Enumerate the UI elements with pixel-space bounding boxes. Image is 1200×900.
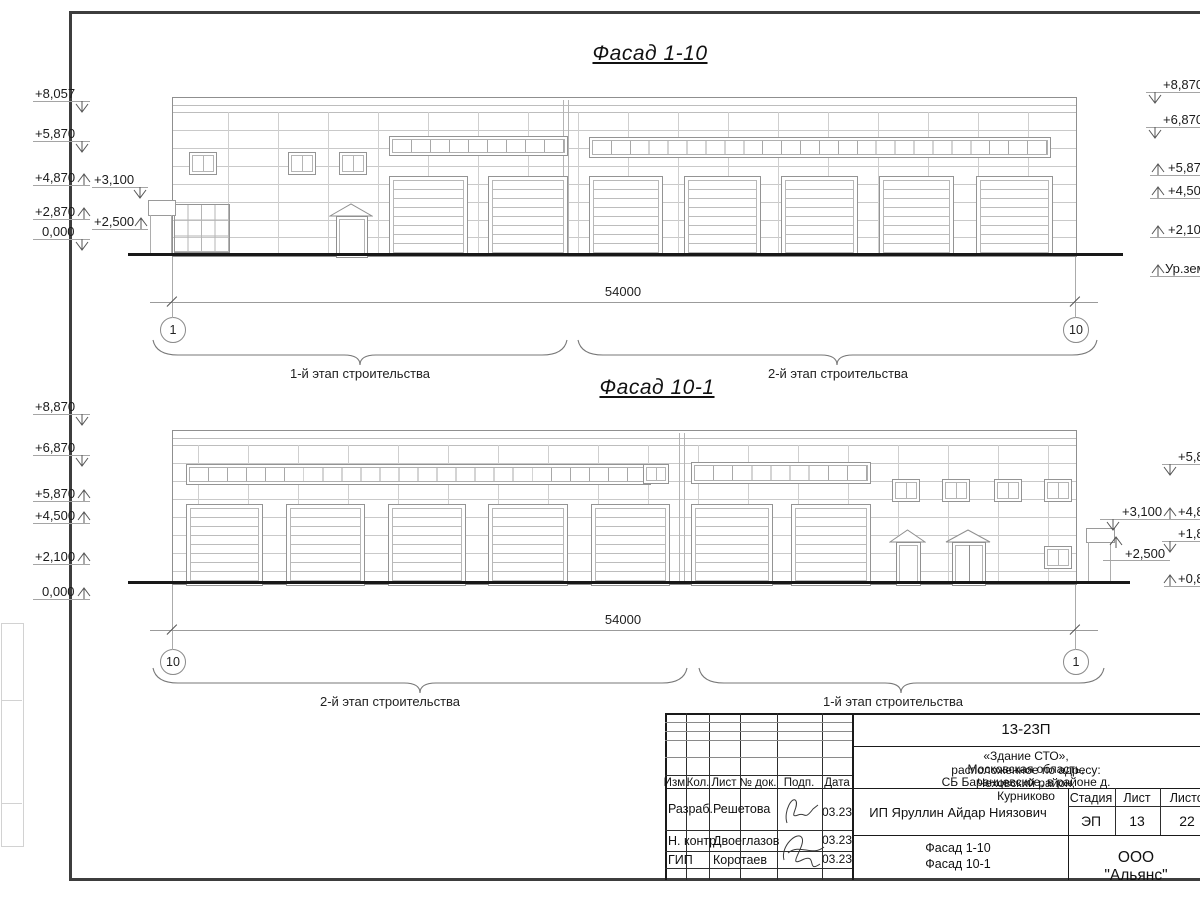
line bbox=[1075, 257, 1076, 318]
elevation-mark-label: +2,870 bbox=[35, 204, 75, 219]
title-block-line bbox=[665, 740, 852, 741]
garage-door-slats bbox=[695, 508, 769, 582]
title-block-line bbox=[709, 713, 710, 880]
row-role: Разраб. bbox=[668, 802, 713, 816]
elevation-mark-label: +8,057 bbox=[35, 86, 75, 101]
panel-joint-line bbox=[173, 130, 1076, 131]
elevation-mark-label: +5,870 bbox=[1168, 160, 1200, 175]
small-window bbox=[942, 479, 970, 502]
elevation-mark-label: +0,8 bbox=[1178, 571, 1200, 586]
drawing-sheet: Фасад 1-10 Фасад 10-1 54000 54000 1 10 1… bbox=[0, 0, 1200, 900]
door-pediment bbox=[889, 529, 926, 543]
elevation-mark-arrow bbox=[1147, 127, 1163, 140]
entry-door bbox=[952, 542, 986, 586]
elevation-mark-label: +4,8 bbox=[1178, 504, 1200, 519]
client-name: ИП Яруллин Айдар Ниязович bbox=[869, 805, 1046, 820]
ribbon-window bbox=[389, 136, 568, 156]
elevation-mark-label: +6,870 bbox=[35, 440, 75, 455]
elevation-mark-arrow bbox=[74, 239, 90, 252]
canopy bbox=[148, 200, 176, 216]
garage-door bbox=[976, 176, 1053, 257]
garage-door-slats bbox=[785, 180, 854, 253]
line bbox=[1150, 198, 1200, 199]
title-block-line bbox=[665, 775, 852, 776]
line bbox=[1075, 585, 1076, 650]
elevation-mark-label: +5,870 bbox=[35, 486, 75, 501]
canopy-post bbox=[1110, 542, 1111, 582]
col-header-list: Лист bbox=[712, 777, 737, 789]
row-date: 03.23 bbox=[822, 805, 852, 819]
elevation-mark-arrow bbox=[74, 141, 90, 154]
col-header-kol: Кол. bbox=[687, 777, 710, 789]
parapet-band-line bbox=[173, 438, 1076, 439]
parapet-band-line bbox=[173, 445, 1076, 446]
stage-header: Стадия bbox=[1070, 791, 1113, 805]
elevation-mark-label: 0,000 bbox=[42, 224, 75, 239]
line bbox=[1150, 237, 1200, 238]
elevation-mark-label: Ур.земли bbox=[1165, 261, 1200, 276]
window-mullion bbox=[1058, 550, 1059, 565]
garage-door-slats bbox=[883, 180, 950, 253]
small-window bbox=[339, 152, 367, 175]
garage-door-slats bbox=[795, 508, 867, 582]
garage-door bbox=[781, 176, 858, 257]
signature-icon bbox=[780, 791, 822, 829]
row-role: ГИП bbox=[668, 853, 693, 867]
elevation-mark-arrow bbox=[74, 414, 90, 427]
garage-door bbox=[488, 504, 568, 586]
elevation-mark-arrow bbox=[76, 510, 92, 523]
elevation-mark-arrow bbox=[74, 455, 90, 468]
title-block-line bbox=[1115, 788, 1116, 835]
col-header-doc: № док. bbox=[740, 777, 777, 789]
panel-joint-line bbox=[173, 499, 1076, 500]
doc-number: 13-23П bbox=[1001, 721, 1050, 738]
small-window-panes bbox=[1047, 482, 1069, 499]
elevation-mark-arrow bbox=[1162, 541, 1178, 554]
garage-door-slats bbox=[290, 508, 361, 582]
small-window bbox=[189, 152, 217, 175]
panel-joint-line bbox=[328, 112, 329, 254]
ribbon-window-panes bbox=[694, 465, 868, 481]
row-name: Решетова bbox=[713, 802, 770, 816]
small-window-panes bbox=[895, 482, 917, 499]
panel-joint-line bbox=[278, 112, 279, 254]
elevation-mark-label: +2,500 bbox=[94, 214, 134, 229]
elevation-mark-arrow bbox=[76, 551, 92, 564]
elevation-mark-label: +5,8 bbox=[1178, 449, 1200, 464]
small-window-panes bbox=[1047, 549, 1069, 566]
elevation-mark-label: +2,100 bbox=[1168, 222, 1200, 237]
line bbox=[1150, 175, 1200, 176]
door-leaf bbox=[339, 219, 365, 255]
garage-door bbox=[186, 504, 263, 586]
window-mullion bbox=[906, 483, 907, 498]
door-leaf bbox=[899, 545, 918, 583]
elevation-mark-label: +3,100 bbox=[94, 172, 134, 187]
sheet-header: Лист bbox=[1123, 791, 1150, 805]
ribbon-window-panes bbox=[189, 467, 648, 482]
panel-joint-line bbox=[478, 112, 479, 254]
small-window-panes bbox=[945, 482, 967, 499]
line bbox=[33, 523, 90, 524]
elevation-mark-arrow bbox=[1150, 162, 1166, 175]
stage-joint-line bbox=[679, 433, 680, 582]
entry-door bbox=[896, 542, 921, 586]
elevation-mark-label: +1,8 bbox=[1178, 526, 1200, 541]
garage-door-slats bbox=[593, 180, 659, 253]
small-window bbox=[1044, 546, 1072, 569]
row-role: Н. контр. bbox=[668, 834, 720, 848]
stage-joint-line bbox=[684, 433, 685, 582]
window-mullion bbox=[302, 156, 303, 171]
line bbox=[172, 585, 173, 650]
line bbox=[172, 257, 173, 318]
col-header-izm: Изм. bbox=[664, 777, 689, 789]
elevation-mark-arrow bbox=[74, 101, 90, 114]
glazed-section bbox=[174, 204, 230, 253]
elevation-mark-arrow bbox=[1150, 224, 1166, 237]
line bbox=[33, 599, 90, 600]
small-window-panes bbox=[646, 467, 666, 481]
window-mullion bbox=[956, 483, 957, 498]
garage-door bbox=[791, 504, 871, 586]
elevation-mark-arrow bbox=[1162, 464, 1178, 477]
elevation-mark-label: +4,500 bbox=[1168, 183, 1200, 198]
elevation-mark-label: +4,500 bbox=[35, 508, 75, 523]
stage-joint-line bbox=[568, 100, 569, 254]
stage-value: ЭП bbox=[1081, 813, 1101, 829]
elevation-mark-label: +2,100 bbox=[35, 549, 75, 564]
garage-door bbox=[591, 504, 670, 586]
garage-door bbox=[691, 504, 773, 586]
garage-door bbox=[589, 176, 663, 257]
window-mullion bbox=[203, 156, 204, 171]
door-pediment bbox=[945, 529, 991, 543]
small-window bbox=[643, 464, 669, 484]
panel-joint-line bbox=[578, 112, 579, 254]
garage-door-slats bbox=[393, 180, 464, 253]
elevation-mark-label: +2,500 bbox=[1125, 546, 1165, 561]
window-mullion bbox=[353, 156, 354, 171]
elevation-mark-arrow bbox=[132, 187, 148, 200]
line bbox=[1150, 276, 1200, 277]
drawing-title-line: Фасад 1-10 bbox=[925, 841, 990, 855]
small-window-panes bbox=[291, 155, 313, 172]
elevation-mark-label: +8,870 bbox=[35, 399, 75, 414]
small-window-panes bbox=[192, 155, 214, 172]
ribbon-window bbox=[691, 462, 871, 484]
parapet-band-line bbox=[173, 112, 1076, 113]
elevation-mark-arrow bbox=[1150, 263, 1166, 276]
elevation-mark-arrow bbox=[76, 488, 92, 501]
drawing-title-line: Фасад 10-1 bbox=[925, 857, 990, 871]
garage-door bbox=[388, 504, 466, 586]
elevation-mark-label: +4,870 bbox=[35, 170, 75, 185]
facade-10-1 bbox=[172, 430, 1077, 585]
elevation-mark-arrow bbox=[1105, 519, 1121, 532]
ribbon-window-panes bbox=[392, 139, 565, 153]
elevation-mark-label: +5,870 bbox=[35, 126, 75, 141]
garage-door-slats bbox=[190, 508, 259, 582]
canopy-post bbox=[150, 215, 151, 254]
small-window bbox=[288, 152, 316, 175]
garage-door-slats bbox=[688, 180, 757, 253]
elevation-mark-arrow bbox=[1108, 535, 1124, 548]
ribbon-window bbox=[186, 464, 651, 485]
elevation-mark-label: +3,100 bbox=[1122, 504, 1162, 519]
small-window bbox=[892, 479, 920, 502]
title-block-line bbox=[665, 722, 852, 723]
row-name: Коротаев bbox=[713, 853, 767, 867]
line bbox=[33, 564, 90, 565]
small-window bbox=[994, 479, 1022, 502]
title-block-line bbox=[852, 835, 1200, 836]
line bbox=[92, 229, 148, 230]
line bbox=[1164, 586, 1200, 587]
door-split-line bbox=[969, 545, 970, 583]
window-mullion bbox=[1058, 483, 1059, 498]
door-pediment bbox=[329, 203, 373, 217]
panel-joint-line bbox=[678, 112, 679, 254]
elevation-mark-arrow bbox=[1147, 92, 1163, 105]
parapet-band-line bbox=[173, 105, 1076, 106]
line bbox=[33, 501, 90, 502]
garage-door bbox=[286, 504, 365, 586]
title-block-line bbox=[665, 731, 852, 732]
small-window-panes bbox=[342, 155, 364, 172]
garage-door-slats bbox=[595, 508, 666, 582]
row-name: Двоеглазов bbox=[713, 834, 779, 848]
col-header-podp: Подп. bbox=[784, 777, 815, 789]
small-window-panes bbox=[997, 482, 1019, 499]
line bbox=[150, 302, 1098, 303]
title-block-line bbox=[1068, 806, 1200, 807]
title-block-line bbox=[665, 757, 852, 758]
title-block-line bbox=[852, 713, 854, 880]
elevation-mark-arrow bbox=[76, 172, 92, 185]
canopy-post bbox=[171, 215, 172, 254]
title-block-line bbox=[852, 746, 1200, 747]
line bbox=[150, 630, 1098, 631]
facade-1-10 bbox=[172, 97, 1077, 257]
window-mullion bbox=[656, 468, 657, 480]
line bbox=[1103, 560, 1170, 561]
line bbox=[33, 185, 90, 186]
sheets-header: Листов bbox=[1170, 791, 1200, 805]
garage-door-slats bbox=[492, 180, 564, 253]
entry-door bbox=[336, 216, 368, 258]
elevation-mark-arrow bbox=[1162, 573, 1178, 586]
panel-joint-line bbox=[778, 112, 779, 254]
company-name: ООО "Альянс" bbox=[1104, 849, 1168, 885]
elevation-mark-arrow bbox=[1150, 185, 1166, 198]
garage-door bbox=[879, 176, 954, 257]
col-header-data: Дата bbox=[824, 777, 849, 789]
line bbox=[1164, 519, 1200, 520]
panel-joint-line bbox=[998, 445, 999, 582]
sheets-total: 22 bbox=[1179, 813, 1195, 829]
panel-joint-line bbox=[378, 112, 379, 254]
ribbon-window-panes bbox=[592, 140, 1048, 155]
garage-door bbox=[488, 176, 568, 257]
small-window bbox=[1044, 479, 1072, 502]
title-block-line bbox=[665, 713, 667, 880]
garage-door bbox=[684, 176, 761, 257]
elevation-mark-label: +6,870 bbox=[1163, 112, 1200, 127]
garage-door-slats bbox=[392, 508, 462, 582]
garage-door-slats bbox=[492, 508, 564, 582]
ground-line bbox=[128, 253, 1123, 256]
title-block-line bbox=[1160, 788, 1161, 835]
elevation-mark-arrow bbox=[76, 206, 92, 219]
garage-door bbox=[389, 176, 468, 257]
ribbon-window bbox=[589, 137, 1051, 158]
ground-line bbox=[128, 581, 1130, 584]
elevation-mark-label: +8,870 bbox=[1163, 77, 1200, 92]
panel-joint-line bbox=[948, 445, 949, 582]
sheet-number: 13 bbox=[1129, 813, 1145, 829]
signature-icon bbox=[776, 826, 828, 876]
window-mullion bbox=[1008, 483, 1009, 498]
title-block-line bbox=[665, 713, 1200, 715]
elevation-mark-label: 0,000 bbox=[42, 584, 75, 599]
elevation-mark-arrow bbox=[1162, 506, 1178, 519]
elevation-mark-arrow bbox=[133, 216, 149, 229]
line bbox=[33, 219, 90, 220]
elevation-mark-arrow bbox=[76, 586, 92, 599]
garage-door-slats bbox=[980, 180, 1049, 253]
canopy-post bbox=[1088, 542, 1089, 582]
